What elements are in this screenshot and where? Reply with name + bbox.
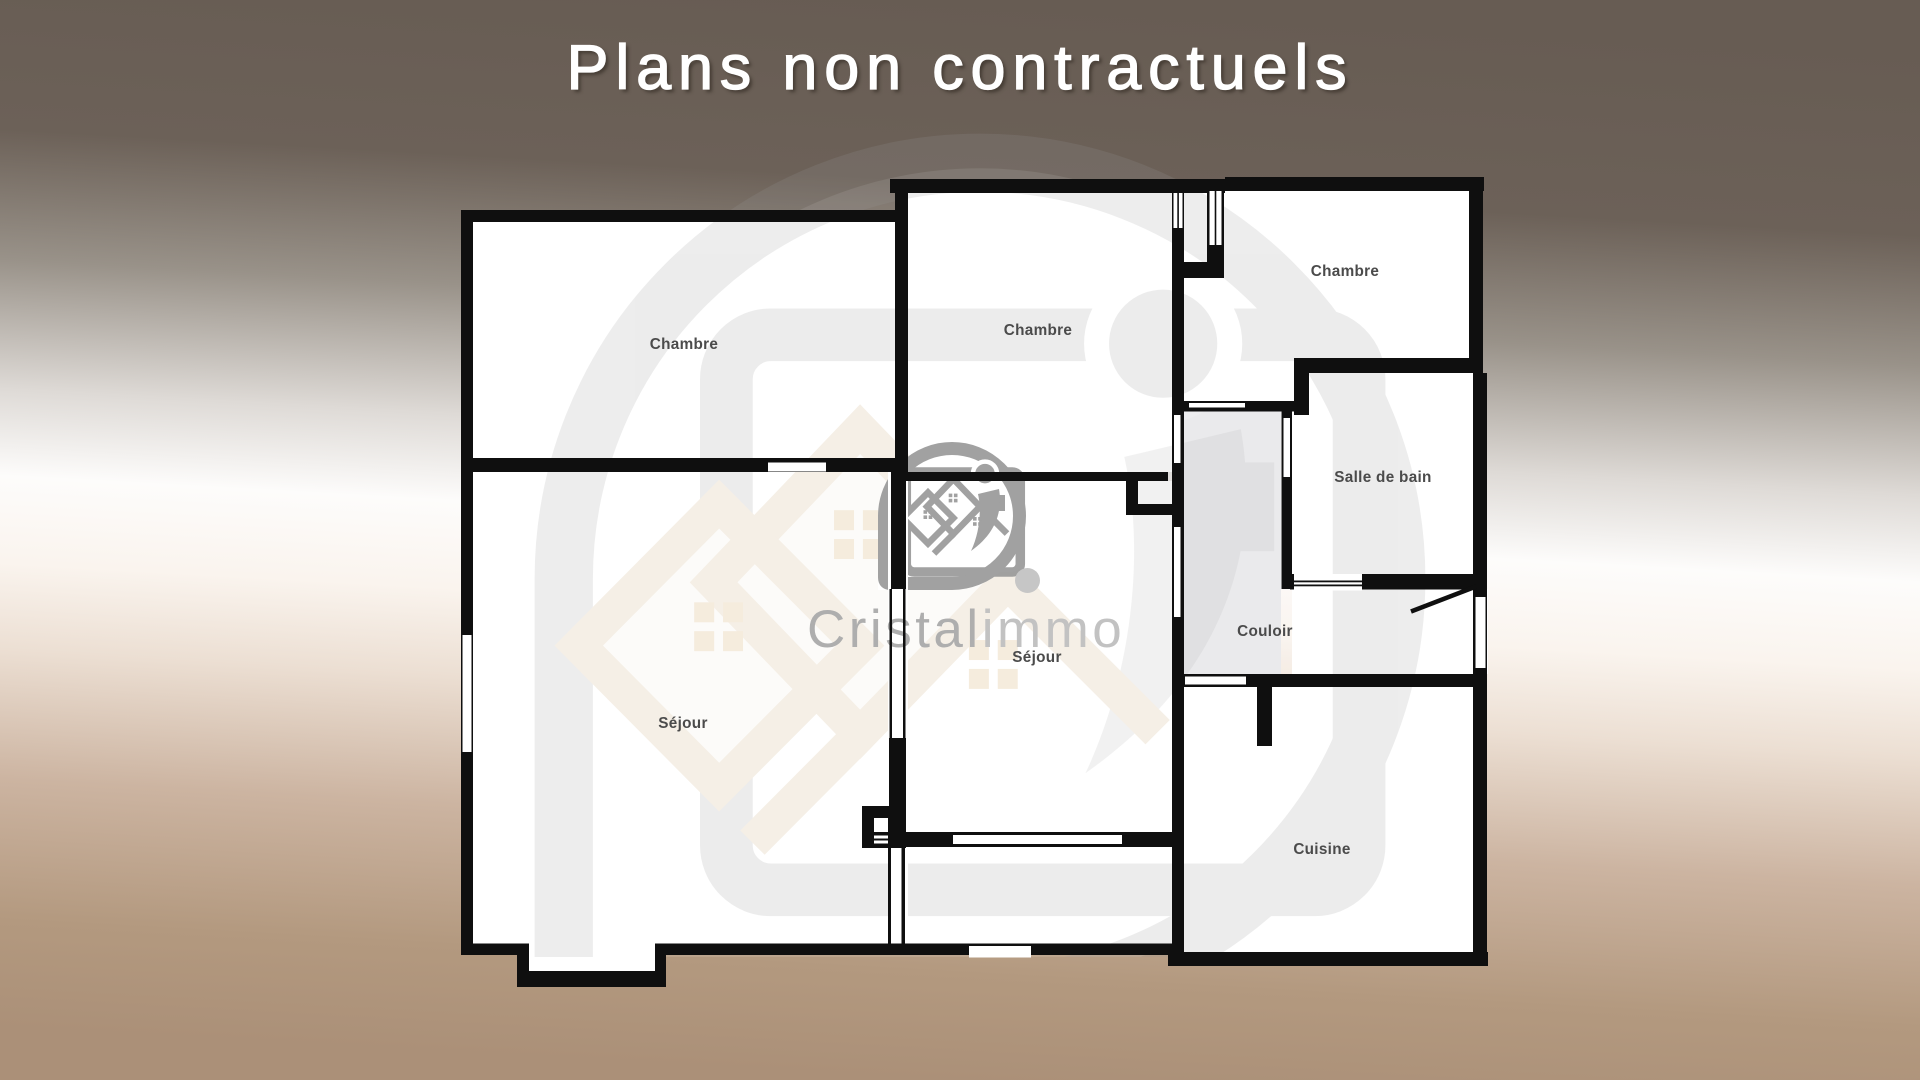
svg-text:Couloir: Couloir — [1237, 623, 1293, 640]
svg-text:Cristalimmo: Cristalimmo — [807, 600, 1125, 659]
svg-text:Cuisine: Cuisine — [1293, 841, 1350, 858]
svg-text:Séjour: Séjour — [1012, 649, 1061, 666]
svg-text:Chambre: Chambre — [1311, 263, 1379, 280]
svg-text:Chambre: Chambre — [1004, 322, 1072, 339]
svg-text:Salle de bain: Salle de bain — [1334, 469, 1431, 486]
svg-text:Séjour: Séjour — [658, 715, 707, 732]
svg-text:Chambre: Chambre — [650, 336, 718, 353]
